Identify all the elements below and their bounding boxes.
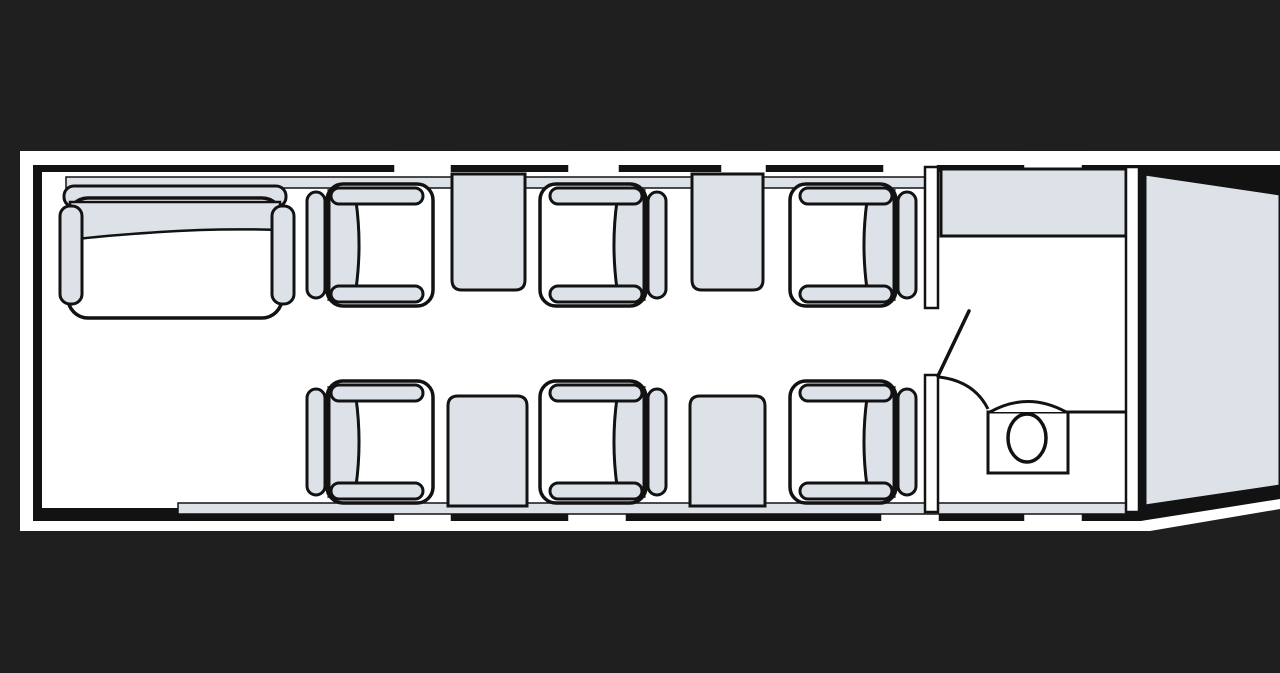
baggage-compartment — [1145, 174, 1280, 506]
aft-bulkhead — [1126, 167, 1139, 512]
seat-1A — [307, 184, 433, 306]
seat-2B — [540, 381, 666, 503]
floorplan-svg — [0, 0, 1280, 673]
side-table-top-1 — [452, 174, 525, 290]
cabin-floorplan — [0, 0, 1280, 673]
seat-1B — [307, 381, 433, 503]
hull-band-top — [20, 151, 1280, 165]
galley-cabinet — [941, 169, 1126, 236]
lav-partition-top — [925, 167, 938, 308]
side-table-top-2 — [692, 174, 763, 290]
toilet-bowl — [1008, 414, 1046, 462]
divan — [60, 186, 294, 318]
side-table-bottom-1 — [448, 396, 527, 506]
seat-3A — [790, 184, 916, 306]
sidewall-trim-bottom — [178, 503, 1126, 514]
seat-2A — [540, 184, 666, 306]
forward-bulkhead — [20, 151, 33, 531]
side-table-bottom-2 — [690, 396, 765, 506]
lav-partition-bottom — [925, 375, 938, 512]
seat-3B — [790, 381, 916, 503]
